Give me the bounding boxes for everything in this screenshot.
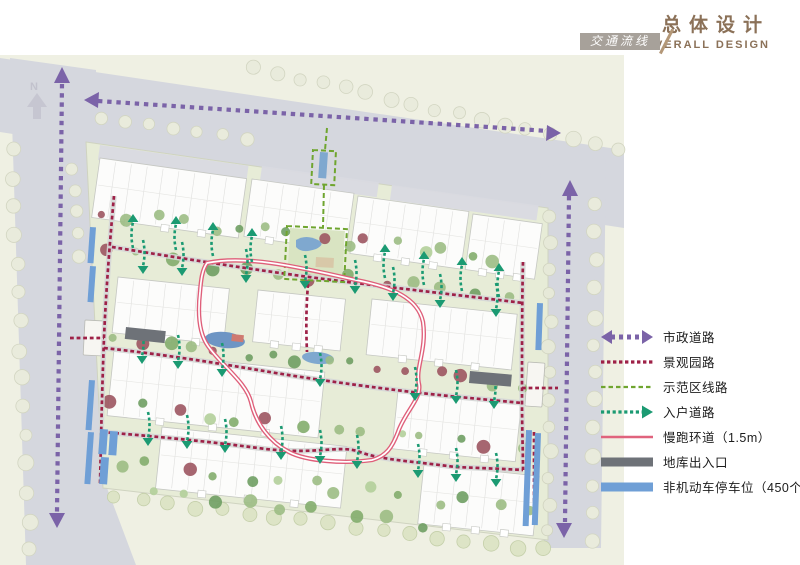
demo-route-symbol	[600, 379, 654, 395]
east-gate	[525, 362, 545, 407]
page-title: 总体设计	[662, 10, 770, 37]
svg-text:N: N	[30, 81, 38, 93]
legend-row-garage: 地库出入口	[600, 449, 795, 474]
entry-road-symbol	[600, 404, 654, 420]
legend-row-municipal: 市政道路	[600, 324, 795, 349]
jogging-loop-symbol	[600, 429, 654, 445]
bike-parking-symbol	[600, 479, 654, 495]
municipal-road-symbol	[600, 329, 654, 345]
title-block: 总体设计 OVERALL DESIGN 交通流线	[512, 10, 772, 58]
slide: N	[0, 0, 800, 565]
section-tab: 交通流线	[580, 33, 660, 50]
landscape-road-symbol	[600, 354, 654, 370]
legend-row-demo: 示范区线路	[600, 374, 795, 399]
legend-row-jogging: 慢跑环道（1.5m）	[600, 424, 795, 449]
legend-row-landscape: 景观园路	[600, 349, 795, 374]
bike-parking-strip	[108, 431, 118, 455]
legend: 市政道路 景观园路 示范区线路 入户道路 慢跑环道（1.5m）	[600, 324, 795, 499]
garage-entrance-symbol	[600, 454, 654, 470]
legend-row-bike-parking: 非机动车停车位（450个）	[600, 474, 795, 499]
legend-row-entry: 入户道路	[600, 399, 795, 424]
